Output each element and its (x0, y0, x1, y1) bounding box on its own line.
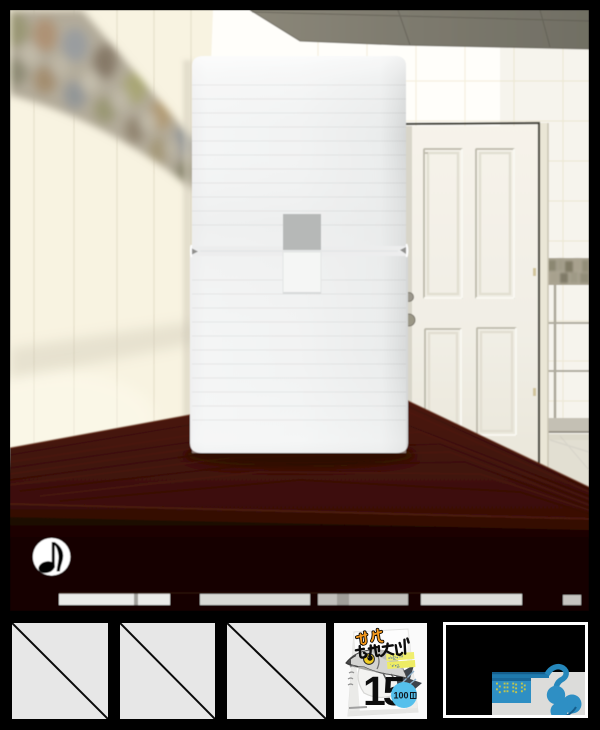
svg-text:100: 100 (394, 691, 409, 701)
